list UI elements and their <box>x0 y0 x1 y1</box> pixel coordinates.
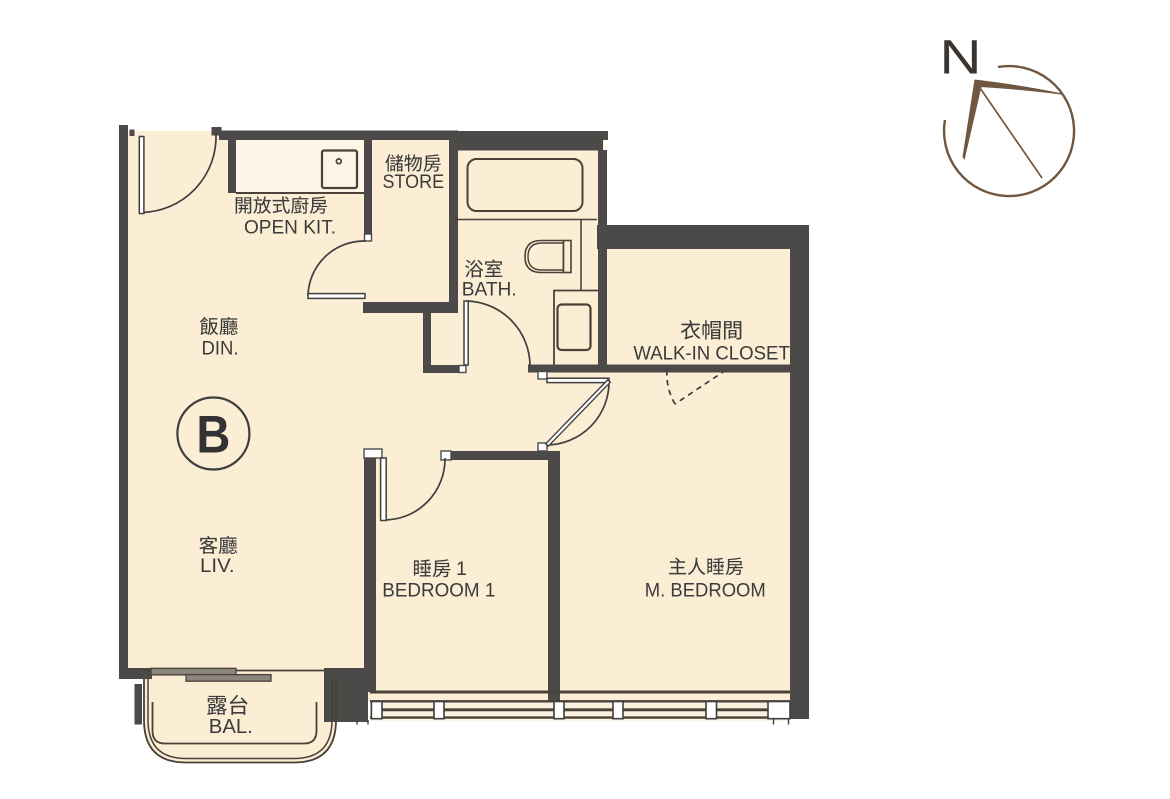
svg-text:B: B <box>196 406 230 465</box>
svg-text:M. BEDROOM: M. BEDROOM <box>645 579 766 601</box>
svg-text:1: 1 <box>456 558 467 580</box>
svg-text:STORE: STORE <box>383 171 445 193</box>
svg-text:BAL.: BAL. <box>209 715 253 738</box>
svg-text:N: N <box>940 31 982 85</box>
svg-text:LIV.: LIV. <box>200 555 235 577</box>
svg-text:DIN.: DIN. <box>202 337 239 359</box>
svg-text:WALK-IN CLOSET: WALK-IN CLOSET <box>633 343 790 365</box>
svg-text:BEDROOM 1: BEDROOM 1 <box>382 579 495 601</box>
svg-text:BATH.: BATH. <box>462 279 517 301</box>
svg-text:OPEN KIT.: OPEN KIT. <box>244 217 336 239</box>
